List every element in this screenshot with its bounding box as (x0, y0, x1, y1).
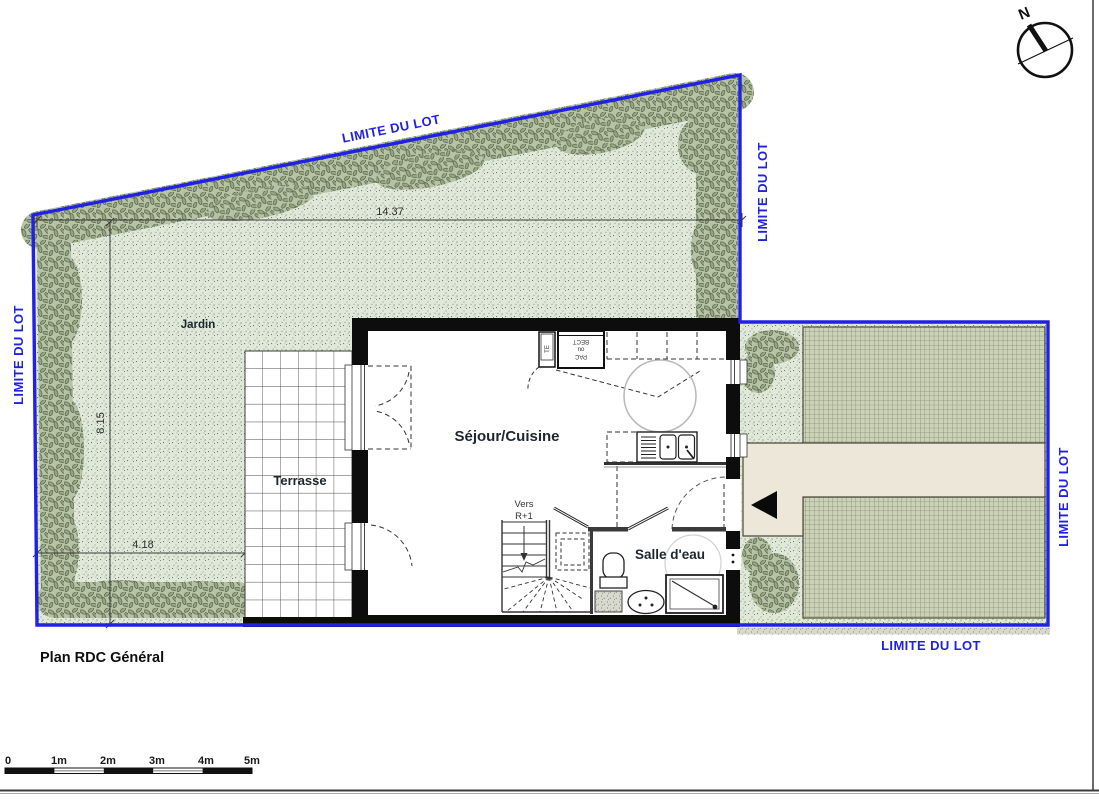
toilet (603, 553, 624, 579)
bathroom-label: Salle d'eau (635, 547, 705, 562)
plan-sheet: 14.37 8.15 4.18 (0, 0, 1099, 800)
floor-plan-canvas: 14.37 8.15 4.18 (0, 0, 1099, 800)
plan-title: Plan RDC Général (40, 650, 164, 666)
sidewalk-strip (737, 628, 1050, 635)
lot-limit-label-right-lower: LIMITE DU LOT (1056, 447, 1071, 547)
terrace-label: Terrasse (273, 473, 326, 488)
lot-limit-label-bottom: LIMITE DU LOT (881, 638, 981, 653)
washer-space (595, 591, 622, 612)
dimension-terrace-width: 4.18 (132, 539, 153, 551)
te-closet-label: TE (545, 345, 551, 353)
scale-tick-5: 5m (244, 755, 260, 767)
terrace (243, 351, 352, 627)
scale-tick-1: 1m (51, 755, 67, 767)
svg-text:PAC: PAC (574, 353, 587, 359)
scale-tick-2: 2m (100, 755, 116, 767)
lot-limit-label-right-upper: LIMITE DU LOT (755, 142, 770, 242)
svg-text:ou: ou (578, 346, 585, 352)
house: PAC ou BECT TE (345, 318, 747, 627)
dimension-top-width: 14.37 (376, 206, 404, 218)
garden-label: Jardin (181, 319, 216, 331)
stairs-direction-line2: R+1 (515, 511, 533, 522)
entrance-door-opening (726, 479, 741, 531)
scale-tick-0: 0 (5, 755, 11, 767)
washbasin (628, 591, 664, 614)
dimension-left-height: 8.15 (95, 412, 107, 433)
svg-text:BECT: BECT (573, 338, 589, 344)
living-kitchen-label: Séjour/Cuisine (454, 428, 559, 445)
scale-tick-4: 4m (198, 755, 214, 767)
scale-tick-3: 3m (149, 755, 165, 767)
lot-limit-label-left: LIMITE DU LOT (11, 305, 26, 405)
stairs-direction-line1: Vers (514, 499, 533, 510)
